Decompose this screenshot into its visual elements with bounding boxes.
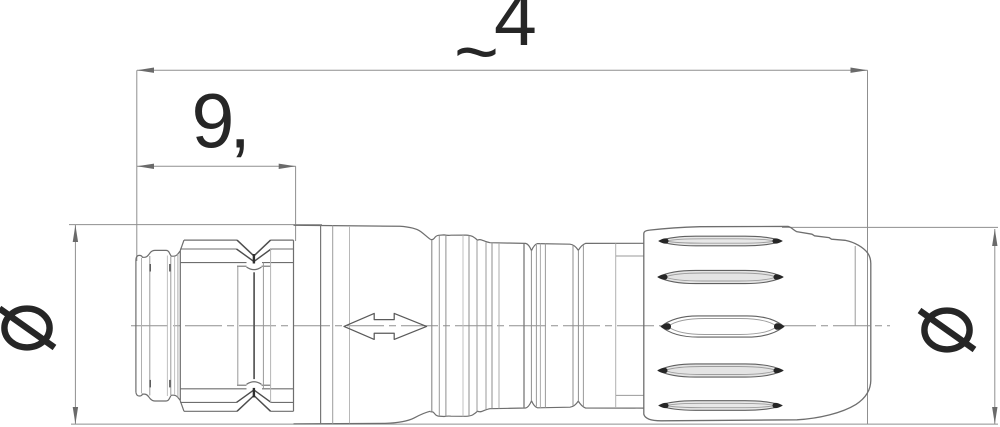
svg-text:4: 4 <box>494 0 537 62</box>
svg-text:~: ~ <box>454 9 499 95</box>
svg-text:9,: 9, <box>192 78 246 164</box>
